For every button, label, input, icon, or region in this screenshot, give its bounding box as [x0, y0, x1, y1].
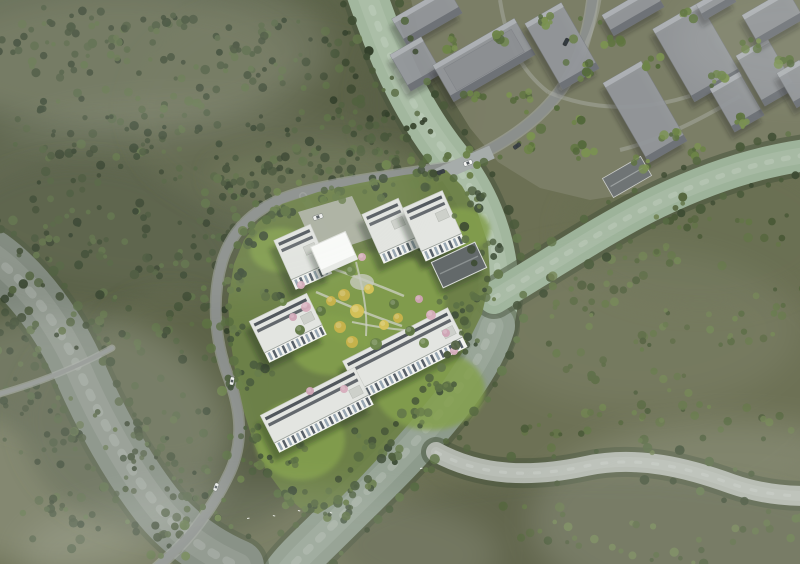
fog-haze	[480, 250, 800, 410]
aerial-site-rendering-stage	[0, 0, 800, 564]
aerial-site-rendering	[0, 0, 800, 564]
